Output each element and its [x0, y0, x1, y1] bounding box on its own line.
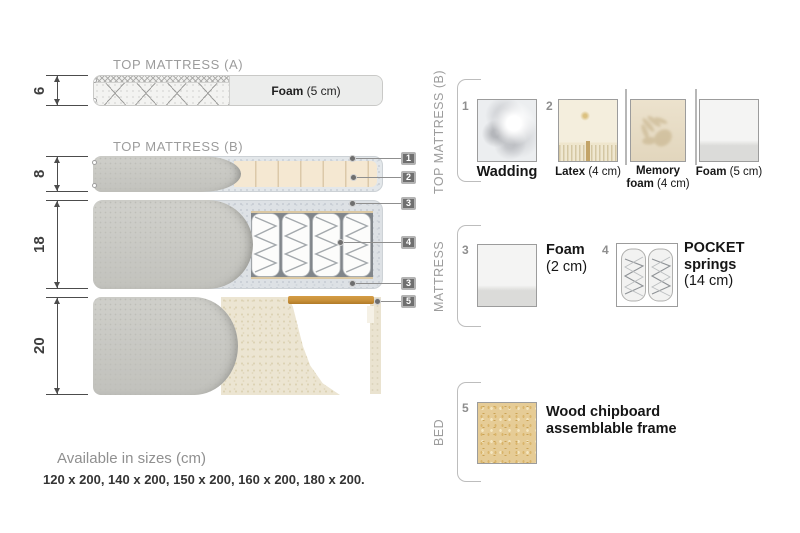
- section-label-bed: BED: [431, 382, 447, 482]
- gray-fabric-cover: [93, 297, 238, 395]
- callout-line: [352, 283, 402, 284]
- callout-line: [352, 158, 402, 159]
- top-mattress-a-title: TOP MATTRESS (A): [113, 57, 243, 72]
- callout-tag-4: 4: [401, 236, 416, 249]
- panel-number-4: 4: [602, 243, 609, 257]
- memory-foam-swatch: [630, 99, 686, 162]
- callout-dot: [337, 239, 344, 246]
- section-label-top-mattress-b: TOP MATTRESS (B): [431, 68, 447, 196]
- dimension-6: 6: [30, 75, 90, 106]
- dimension-8: 8: [30, 156, 90, 192]
- dimension-tick: [46, 105, 88, 106]
- panel-number-3: 3: [462, 243, 469, 257]
- panel-number-2: 2: [546, 99, 553, 113]
- wadding-caption: Wadding: [465, 164, 549, 180]
- callout-tag-3b: 3: [401, 277, 416, 290]
- callout-tag-1: 1: [401, 152, 416, 165]
- dimension-20: 20: [30, 297, 90, 395]
- foam-2cm-caption: Foam (2 cm): [546, 242, 587, 275]
- panel-divider: [695, 89, 697, 165]
- top-mattress-a-cross-section: Foam (5 cm): [93, 75, 383, 106]
- dimension-tick: [46, 394, 88, 395]
- dimension-18: 18: [30, 200, 90, 289]
- latex-notch-texture: [586, 141, 590, 161]
- arrow-up-icon: [54, 76, 60, 82]
- section-label-mattress: MATTRESS: [431, 225, 447, 327]
- vent-eyelet-icon: [92, 160, 97, 165]
- arrow-down-icon: [54, 185, 60, 191]
- panel-number-1: 1: [462, 99, 469, 113]
- top-mattress-b-title: TOP MATTRESS (B): [113, 139, 243, 154]
- callout-dot: [349, 200, 356, 207]
- wood-slat: [288, 296, 374, 304]
- foam-5cm-caption: Foam (5 cm): [687, 166, 771, 179]
- available-sizes-list: 120 x 200, 140 x 200, 150 x 200, 160 x 2…: [43, 472, 365, 487]
- dimension-6-value: 6: [31, 75, 48, 106]
- callout-dot: [349, 280, 356, 287]
- arrow-up-icon: [54, 298, 60, 304]
- callout-line: [352, 203, 402, 204]
- gray-fabric-cover: [93, 200, 253, 289]
- panel-divider: [625, 89, 627, 165]
- stitching-strip: [94, 76, 229, 83]
- pocket-springs-illustration: [251, 213, 373, 277]
- dimension-line: [57, 298, 58, 394]
- pocket-springs-cutaway: [251, 211, 373, 279]
- hand-imprint-icon: [631, 100, 685, 161]
- vent-eyelet-icon: [92, 183, 97, 188]
- foam-a-label: Foam (5 cm): [271, 84, 340, 98]
- callout-dot: [350, 174, 357, 181]
- chipboard-side-panel: [221, 297, 345, 395]
- frame-joint-notch: [367, 306, 374, 323]
- dimension-8-value: 8: [31, 156, 48, 192]
- mattress-construction-infographic: TOP MATTRESS (A) 6 Foam (5 cm) TOP MATTR…: [0, 0, 800, 533]
- callout-tag-3: 3: [401, 197, 416, 210]
- latex-swatch: [558, 99, 618, 162]
- arrow-down-icon: [54, 282, 60, 288]
- wood-chipboard-swatch: [477, 402, 537, 464]
- wood-chipboard-caption: Wood chipboard assemblable frame: [546, 404, 677, 438]
- dimension-tick: [46, 191, 88, 192]
- callout-line: [353, 177, 402, 178]
- dimension-18-value: 18: [31, 200, 48, 289]
- arrow-up-icon: [54, 201, 60, 207]
- callout-line: [378, 301, 402, 302]
- callout-dot: [374, 298, 381, 305]
- callout-tag-5: 5: [401, 295, 416, 308]
- wadding-swatch: [477, 99, 537, 162]
- dimension-20-value: 20: [31, 297, 48, 395]
- pocket-springs-swatch: [616, 243, 678, 307]
- pocket-springs-icon: [619, 246, 675, 304]
- foam-layer-a: Foam (5 cm): [229, 76, 382, 105]
- arrow-up-icon: [54, 157, 60, 163]
- dimension-tick: [46, 297, 88, 298]
- gray-fabric-cover: [93, 156, 241, 192]
- foam-2cm-swatch: [477, 244, 537, 307]
- panel-number-5: 5: [462, 401, 469, 415]
- bed-base-cross-section: [93, 297, 383, 395]
- foam-5cm-swatch: [699, 99, 759, 162]
- available-sizes-title: Available in sizes (cm): [57, 450, 206, 467]
- callout-dot: [349, 155, 356, 162]
- dimension-tick: [46, 200, 88, 201]
- dimension-line: [57, 201, 58, 288]
- dimension-tick: [46, 75, 88, 76]
- top-mattress-b-cross-section: [93, 156, 383, 192]
- dimension-tick: [46, 156, 88, 157]
- callout-tag-2: 2: [401, 171, 416, 184]
- pocket-springs-caption: POCKET springs (14 cm): [684, 240, 744, 290]
- dimension-tick: [46, 288, 88, 289]
- arrow-down-icon: [54, 99, 60, 105]
- arrow-down-icon: [54, 388, 60, 394]
- callout-line: [340, 242, 402, 243]
